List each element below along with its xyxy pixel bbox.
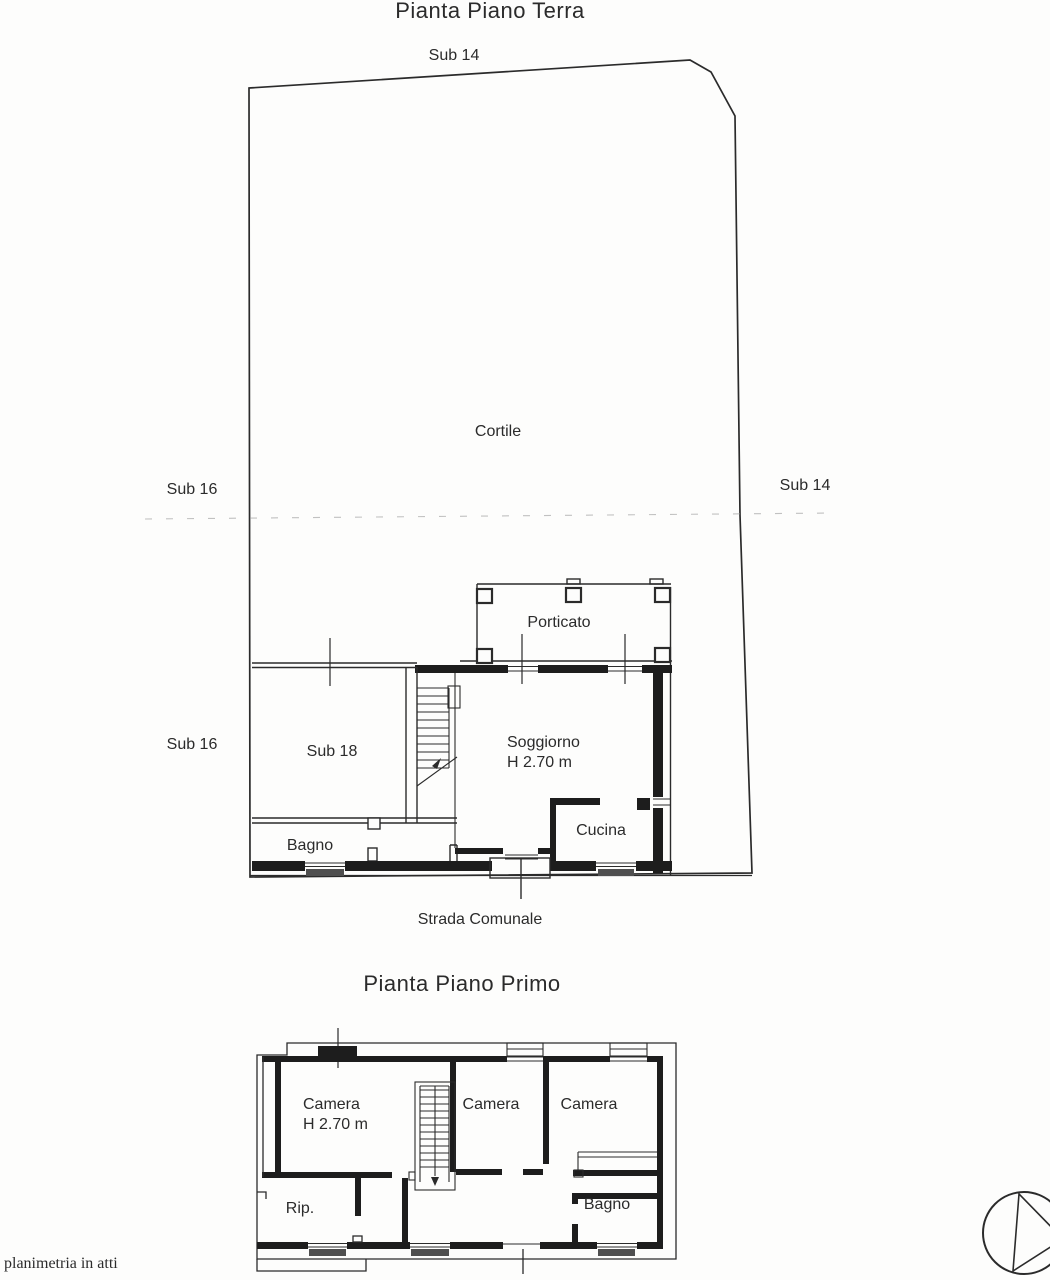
subdivision-dashed-line <box>145 513 836 519</box>
label-cortile: Cortile <box>475 423 521 441</box>
label-camera-left: CameraH 2.70 m <box>303 1095 368 1135</box>
label-camera-left-name: Camera <box>303 1096 360 1113</box>
label-camera-middle: Camera <box>463 1096 520 1114</box>
porticato-column <box>655 648 670 662</box>
sub18-walls <box>252 663 457 861</box>
label-sub16-lower: Sub 16 <box>167 736 218 754</box>
label-sub18: Sub 18 <box>307 743 358 761</box>
first-floor-staircase <box>409 1082 455 1190</box>
label-soggiorno-height: H 2.70 m <box>507 754 572 771</box>
label-sub14-top: Sub 14 <box>429 47 480 65</box>
label-sub16-upper: Sub 16 <box>167 481 218 499</box>
label-porticato: Porticato <box>527 614 590 632</box>
footer-note: planimetria in atti <box>4 1255 118 1273</box>
label-soggiorno: SoggiornoH 2.70 m <box>507 733 580 773</box>
label-rip: Rip. <box>286 1200 314 1218</box>
first-floor-step <box>257 1259 366 1271</box>
ground-east-wall <box>653 673 663 873</box>
porticato-column <box>477 649 492 663</box>
label-sub14-right: Sub 14 <box>780 477 831 495</box>
ground-east-window <box>653 799 670 805</box>
ground-floor-title: Pianta Piano Terra <box>395 0 585 23</box>
first-floor-plan <box>257 1028 676 1274</box>
label-camera-right: Camera <box>561 1096 618 1114</box>
first-floor-walls <box>257 1046 663 1249</box>
label-cucina: Cucina <box>576 822 626 840</box>
label-soggiorno-name: Soggiorno <box>507 734 580 751</box>
north-compass-icon <box>983 1192 1050 1274</box>
porticato-column <box>477 589 492 603</box>
floorplan-drawing <box>0 0 1050 1280</box>
ground-floor-plan <box>145 60 836 899</box>
ground-staircase <box>417 673 460 848</box>
label-camera-left-height: H 2.70 m <box>303 1116 368 1133</box>
porticato-column <box>655 588 670 602</box>
first-floor-title: Pianta Piano Primo <box>363 971 560 996</box>
label-strada-comunale: Strada Comunale <box>418 911 543 929</box>
entrance-step <box>490 855 550 899</box>
scanned-floorplan-page: Pianta Piano Terra Sub 14 Cortile Sub 16… <box>0 0 1050 1280</box>
first-floor-perimeter <box>257 1043 676 1259</box>
label-bagno-first: Bagno <box>584 1196 630 1214</box>
label-bagno-ground: Bagno <box>287 837 333 855</box>
porticato-column <box>566 588 581 602</box>
